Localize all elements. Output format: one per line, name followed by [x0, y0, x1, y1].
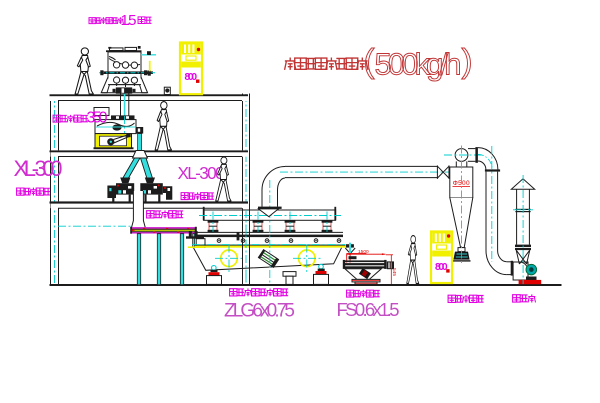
svg-text:1500: 1500: [358, 249, 369, 255]
svg-text:FS0.6x1.5: FS0.6x1.5: [337, 299, 400, 320]
svg-text:(: (: [364, 42, 375, 79]
svg-text:800: 800: [185, 72, 198, 83]
svg-text:500kg/h: 500kg/h: [375, 47, 462, 82]
svg-text:): ): [462, 42, 473, 79]
svg-text:ZLG6x0.75: ZLG6x0.75: [224, 301, 295, 322]
svg-text:545: 545: [391, 268, 397, 276]
svg-text:350: 350: [87, 110, 108, 127]
svg-text:800: 800: [435, 262, 448, 273]
svg-text:XL-300: XL-300: [178, 163, 225, 183]
svg-text:XL-300: XL-300: [14, 156, 63, 181]
svg-text:1.5: 1.5: [121, 12, 137, 29]
